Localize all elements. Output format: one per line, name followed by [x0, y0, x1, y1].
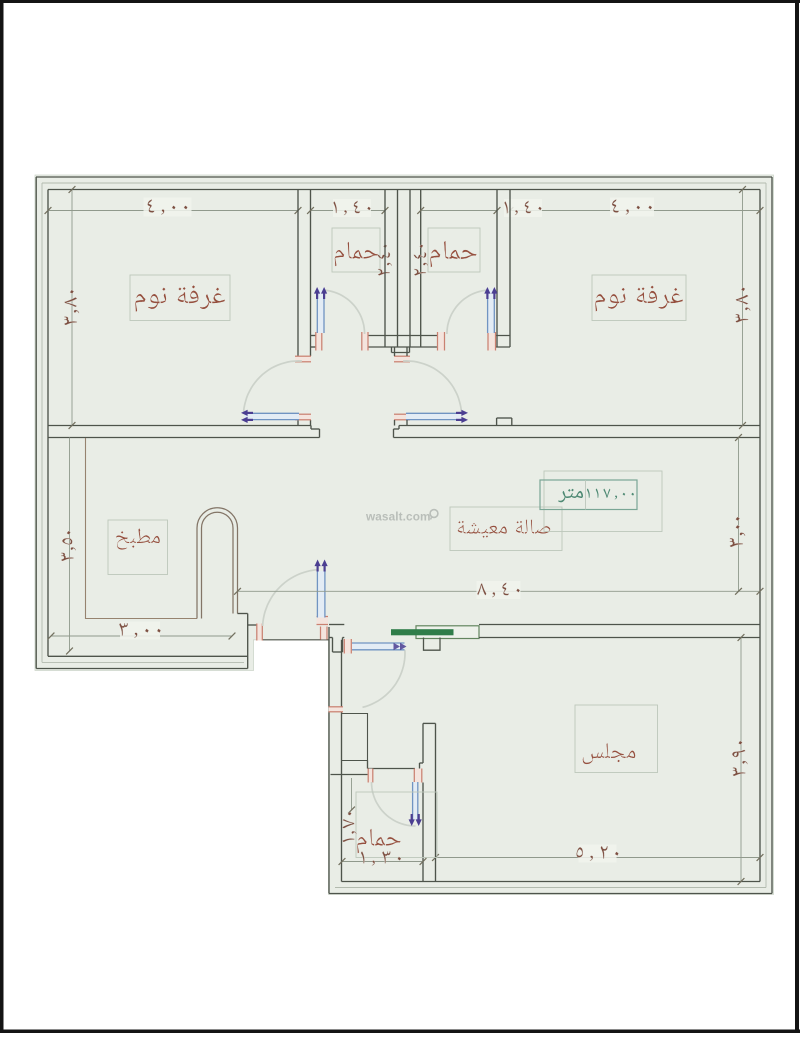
svg-text:wasalt.com: wasalt.com — [365, 510, 431, 524]
